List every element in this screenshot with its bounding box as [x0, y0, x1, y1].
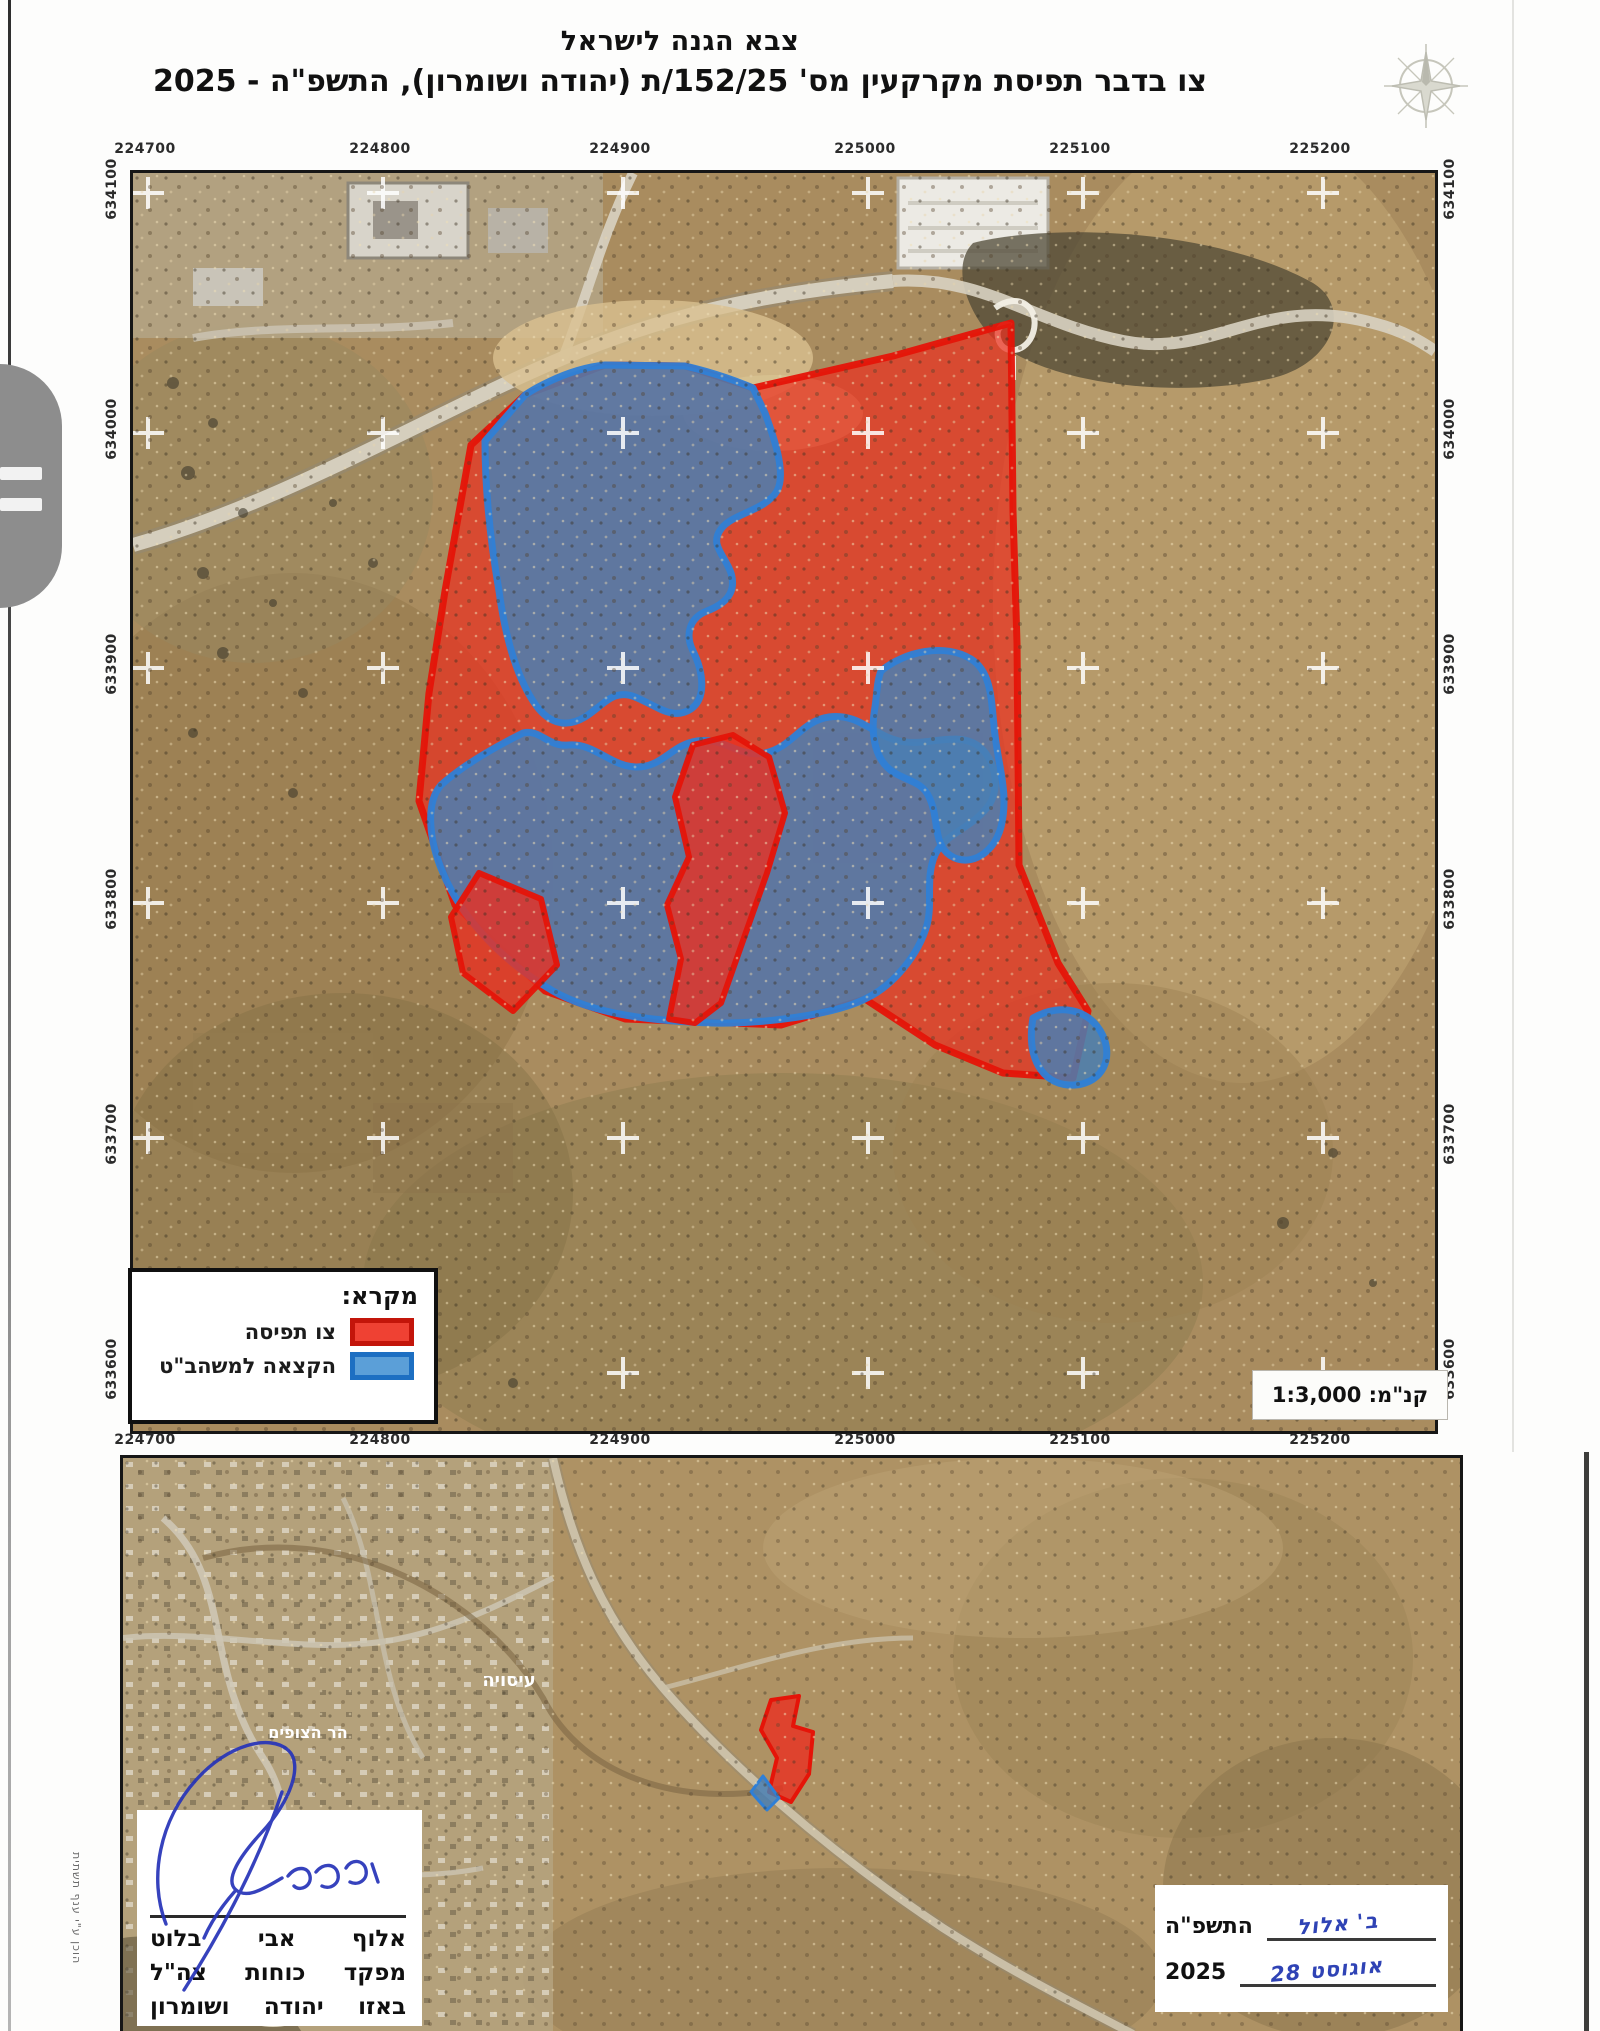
legend-swatch-allocation	[350, 1352, 414, 1380]
legend-swatch-seizure	[350, 1318, 414, 1346]
satellite-basemap	[133, 173, 1435, 1431]
grid-coord-label: 224900	[578, 1432, 662, 1448]
grid-coord-label: 633900	[104, 622, 120, 706]
grid-coord-label: 634100	[104, 147, 120, 231]
compass-rose-icon	[1378, 38, 1474, 134]
signature-text: אלוף אבי בלוט מפקד כוחות צה"ל באזו יהודה…	[150, 1922, 406, 2024]
legend-box: מקרא: צו תפיסה הקצאה למשהב"ט	[128, 1268, 438, 1424]
grid-coord-label: 225200	[1278, 1432, 1362, 1448]
legend-label-seizure: צו תפיסה	[245, 1320, 336, 1344]
grid-coord-label: 633800	[1442, 857, 1458, 941]
drag-handle-icon	[0, 498, 42, 511]
production-note: הוכן ע"י ענף תשתית	[70, 1852, 83, 2031]
grid-coord-label: 224800	[338, 1432, 422, 1448]
grid-coord-label: 225000	[823, 1432, 907, 1448]
signature-line	[150, 1915, 406, 1918]
gregorian-date-handwritten: אוגוסט 28	[1269, 1953, 1384, 1987]
gregorian-year-label: 2025	[1165, 1960, 1226, 1987]
document-page: צבא הגנה לישראל צו בדבר תפיסת מקרקעין מס…	[0, 0, 1600, 2031]
legend-item-allocation: הקצאה למשהב"ט	[132, 1352, 434, 1380]
drag-handle-icon	[0, 467, 42, 480]
page-edge-line	[1512, 0, 1514, 1452]
signature-name: אלוף אבי בלוט	[150, 1922, 406, 1956]
grid-coord-label: 634000	[1442, 387, 1458, 471]
grid-coord-label: 225100	[1038, 141, 1122, 157]
grid-coord-label: 633600	[104, 1327, 120, 1411]
signature-region: באזו יהודה ושומרון	[150, 1990, 406, 2024]
date-underline: אוגוסט 28	[1240, 1950, 1436, 1987]
main-seizure-map	[130, 170, 1438, 1434]
hebrew-date-handwritten: ב' אלול	[1296, 1908, 1379, 1939]
grid-coord-label: 224700	[103, 1432, 187, 1448]
scan-edge-line	[8, 0, 11, 2031]
scale-box: קנ"מ: 1:3,000	[1252, 1370, 1448, 1420]
page-edge-shadow	[1584, 1452, 1589, 2031]
gregorian-date-row: 2025 אוגוסט 28	[1165, 1943, 1440, 1987]
grid-coord-label: 225200	[1278, 141, 1362, 157]
grid-coord-label: 633900	[1442, 622, 1458, 706]
grid-coord-label: 633700	[1442, 1092, 1458, 1176]
grid-coord-label: 224800	[338, 141, 422, 157]
grid-coord-label: 633700	[104, 1092, 120, 1176]
grid-coord-label: 634000	[104, 387, 120, 471]
hebrew-date-row: התשפ"ה ב' אלול	[1165, 1897, 1440, 1941]
grid-coord-label: 634100	[1442, 147, 1458, 231]
document-header: צבא הגנה לישראל צו בדבר תפיסת מקרקעין מס…	[150, 26, 1210, 99]
signature-role: מפקד כוחות צה"ל	[150, 1956, 406, 1990]
grid-coord-label: 225000	[823, 141, 907, 157]
legend-label-allocation: הקצאה למשהב"ט	[159, 1354, 336, 1378]
date-underline: ב' אלול	[1267, 1904, 1436, 1941]
date-box: התשפ"ה ב' אלול 2025 אוגוסט 28	[1155, 1885, 1448, 2012]
scale-label: קנ"מ: 1:3,000	[1272, 1383, 1428, 1407]
legend-item-seizure: צו תפיסה	[132, 1318, 434, 1346]
army-title: צבא הגנה לישראל	[150, 26, 1210, 57]
grid-coord-label: 633800	[104, 857, 120, 941]
side-drawer-handle[interactable]	[0, 364, 62, 608]
page-title: צו בדבר תפיסת מקרקעין מס' 152/25/ת (יהוד…	[150, 64, 1210, 99]
legend-title: מקרא:	[132, 1272, 434, 1312]
hebrew-year-label: התשפ"ה	[1165, 1914, 1253, 1941]
grid-coord-label: 224900	[578, 141, 662, 157]
grid-coord-label: 225100	[1038, 1432, 1122, 1448]
